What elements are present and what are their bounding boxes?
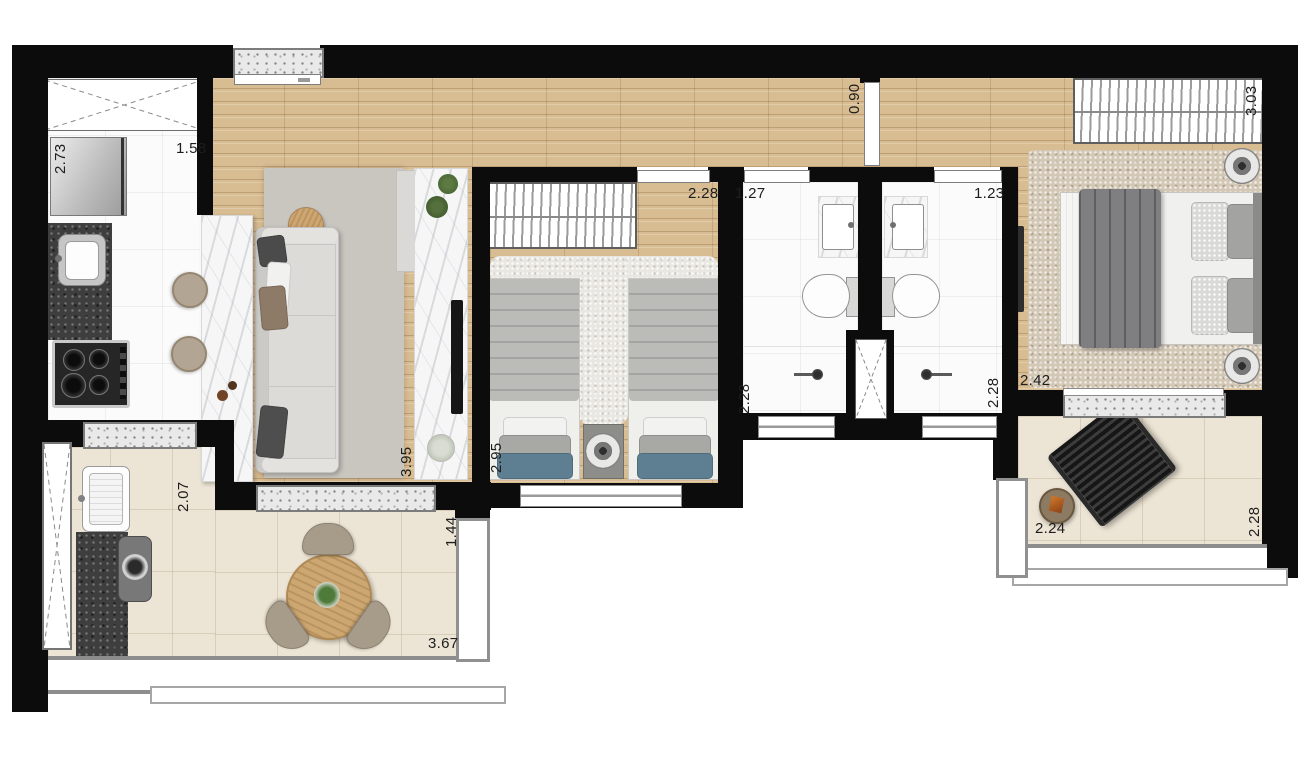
bathroom2-faucet	[890, 222, 896, 228]
bathroom1-door	[744, 170, 810, 183]
ventilation-shaft-x	[855, 339, 887, 419]
burner	[61, 373, 86, 398]
wardrobe-rail	[489, 216, 635, 218]
decor-vase	[228, 381, 237, 390]
laundry-faucet	[78, 495, 85, 502]
bathroom1-window	[758, 416, 835, 438]
floor-plan: 2.73 1.58 0.90 3.03 2.28 1.27 1.23 2.28 …	[0, 0, 1314, 768]
balcony-side-table	[1039, 488, 1075, 524]
bedroom2-door	[637, 170, 710, 183]
dim-balcony-left-depth: 2.07	[175, 482, 192, 512]
plant	[426, 196, 448, 218]
single-bed-right	[628, 278, 720, 480]
kitchen-faucet	[55, 255, 62, 262]
bed-cushion-blue	[637, 453, 713, 479]
duvet	[489, 279, 579, 401]
decor-vase	[217, 390, 228, 401]
dim-bath1-width: 1.27	[735, 185, 765, 202]
dim-balcony2-depth: 2.28	[1246, 507, 1263, 537]
bedroom2-wardrobe	[487, 182, 637, 249]
bathroom1-tile-line	[743, 346, 858, 347]
kitchen-sink-basin	[65, 241, 99, 280]
master-nightstand	[1224, 348, 1260, 384]
sofa-armrest-bottom	[262, 457, 338, 472]
bathroom1-toilet-bowl	[802, 274, 850, 318]
balcony2-glass-side	[996, 478, 1028, 578]
wall-hall-d	[1000, 167, 1018, 182]
laundry-tank	[82, 466, 130, 532]
wall-bath2-master	[1002, 182, 1018, 415]
balcony-railing-outer	[150, 686, 506, 704]
wall-bedroom2-bath1	[718, 182, 743, 508]
hall-door	[864, 82, 880, 166]
wall-top-right	[320, 45, 1298, 78]
burner	[89, 375, 109, 395]
burner	[63, 349, 85, 371]
bathroom2-window	[922, 416, 997, 438]
balcony-glass-side	[456, 518, 490, 662]
sofa-pillow-dark	[255, 405, 288, 460]
overhead-cabinet-icon	[44, 79, 204, 131]
dim-kitchen-width: 1.58	[176, 140, 206, 157]
dim-kitchen-depth: 2.73	[52, 144, 69, 174]
bathroom2-tile-line	[882, 346, 1002, 347]
duvet	[1079, 189, 1161, 348]
dim-master-width: 2.42	[1020, 372, 1050, 389]
bedroom2-rug-runner	[578, 256, 628, 424]
dim-master-wardrobe: 3.03	[1243, 86, 1260, 116]
bathroom2-toilet-bowl	[892, 274, 940, 318]
plant-vase	[427, 434, 455, 462]
burner	[89, 349, 109, 369]
dim-living-depth: 3.95	[398, 447, 415, 477]
stove	[52, 340, 130, 408]
laundry-tank-basin	[89, 473, 123, 525]
kitchen-sink	[58, 234, 106, 286]
master-wardrobe	[1073, 78, 1267, 144]
stove-knobs	[120, 347, 126, 399]
washer-drum	[122, 554, 148, 580]
living-balcony-sill	[256, 485, 436, 512]
dim-bath2-width: 1.23	[974, 185, 1004, 202]
bed-pillow-patterned	[1191, 276, 1229, 335]
bathroom1-shower-head	[812, 369, 823, 380]
wall-hall-a	[472, 167, 637, 182]
bar-stool	[172, 272, 208, 308]
dim-balcony-width: 3.67	[428, 635, 458, 652]
master-sliding-door	[1063, 388, 1224, 396]
wall-hall-c	[808, 167, 934, 182]
bar-stool	[171, 336, 207, 372]
master-balcony-sill	[1063, 393, 1226, 418]
bedroom2-nightstand-tray	[585, 433, 621, 469]
tv	[451, 300, 463, 414]
dim-bedroom2-depth: 2.95	[488, 443, 505, 473]
wardrobe-rail	[1075, 111, 1265, 113]
bathroom2-sink	[892, 204, 924, 250]
entry-door-handle	[298, 78, 310, 82]
dim-balcony2-width: 2.24	[1035, 520, 1065, 537]
bathroom1-faucet	[848, 222, 854, 228]
dim-hall-door-width: 0.90	[846, 84, 863, 114]
washing-machine	[118, 536, 152, 602]
bed-cushion-blue	[497, 453, 573, 479]
bed-pillow-patterned	[1191, 202, 1229, 261]
dim-bath2-depth: 2.28	[985, 378, 1002, 408]
dim-balcony-right-depth: 1.44	[443, 517, 460, 547]
duvet	[629, 279, 719, 401]
kitchen-balcony-sill	[83, 422, 197, 449]
balcony-glass-panel-x	[42, 442, 72, 650]
wall-right	[1262, 45, 1298, 578]
wall-hall-b	[708, 167, 744, 182]
plant	[438, 174, 458, 194]
sofa-pillow-brown	[258, 285, 289, 331]
bedroom2-window	[520, 485, 682, 507]
wall-bath-divider	[858, 182, 882, 335]
refrigerator-door-line	[121, 138, 124, 215]
double-bed	[1060, 192, 1264, 345]
sofa	[255, 227, 339, 473]
bathroom2-door	[934, 170, 1002, 183]
bathroom2-shower-head	[921, 369, 932, 380]
master-nightstand	[1224, 148, 1260, 184]
drink-tray	[1049, 496, 1065, 513]
dim-bath1-depth: 2.28	[736, 384, 753, 414]
balcony2-railing-outer	[1012, 568, 1288, 586]
dim-bedroom2-width: 2.28	[688, 185, 718, 202]
table-plant	[314, 582, 340, 608]
